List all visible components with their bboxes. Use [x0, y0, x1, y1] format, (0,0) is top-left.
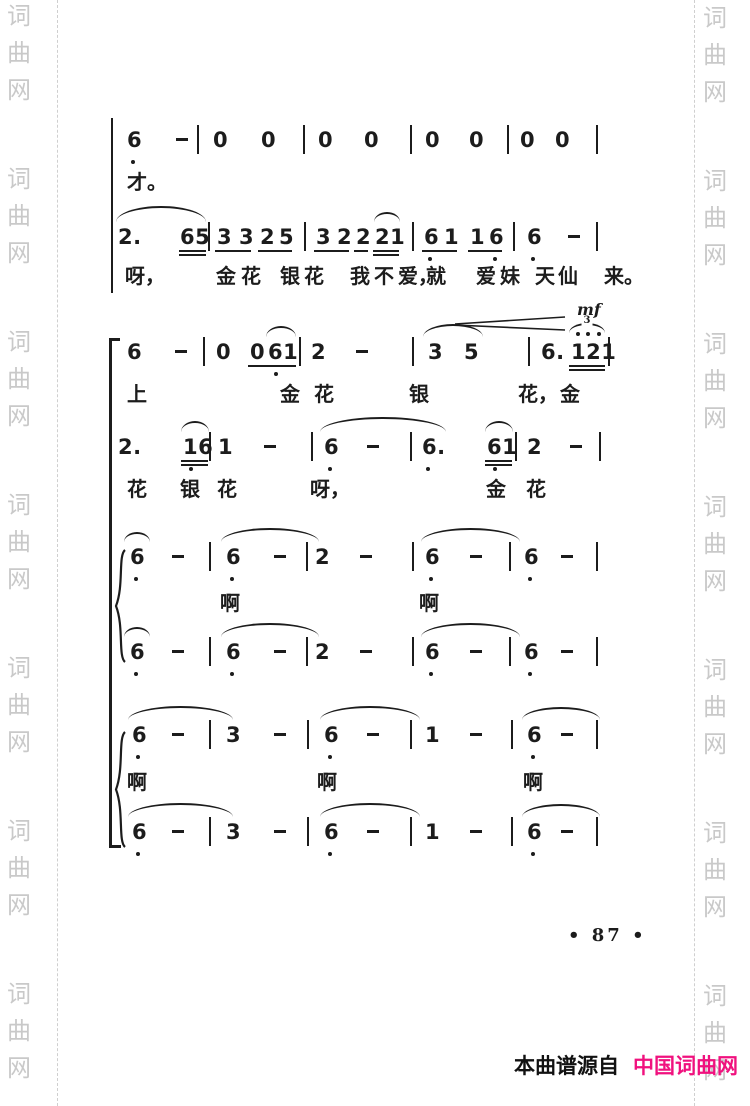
- duration-dash: [172, 650, 184, 653]
- barline: [209, 817, 211, 846]
- beam-underline: [468, 250, 502, 252]
- duration-dash: [175, 350, 187, 353]
- note-number: 2: [315, 640, 330, 664]
- slur: [320, 706, 420, 720]
- barline: [410, 817, 412, 846]
- octave-dot: [328, 852, 332, 856]
- duration-dash: [561, 830, 573, 833]
- duration-dash: [172, 830, 184, 833]
- duration-dash: [274, 733, 286, 736]
- note-number: 6: [489, 225, 504, 249]
- lyric-syllable: 来。: [604, 264, 644, 288]
- barline: [203, 337, 205, 366]
- slur: [221, 528, 319, 542]
- octave-dot: [328, 467, 332, 471]
- source-site-link[interactable]: 中国词曲网: [633, 1054, 738, 1078]
- barline: [412, 542, 414, 571]
- beam-underline: [485, 464, 512, 466]
- voice-brace-1: [113, 549, 127, 663]
- note-number: 2: [260, 225, 275, 249]
- octave-dot: [576, 332, 580, 336]
- duration-dash: [356, 350, 368, 353]
- barline: [197, 125, 199, 154]
- slur: [124, 532, 150, 542]
- note-number: 0: [318, 128, 333, 152]
- lyric-syllable: 啊: [127, 770, 147, 794]
- note-number: 2: [356, 225, 371, 249]
- lyric-syllable: 仙: [558, 264, 578, 288]
- barline: [304, 222, 306, 251]
- duration-dash: [176, 138, 188, 141]
- octave-dot: [597, 332, 601, 336]
- lyric-syllable: 呀，: [125, 264, 165, 288]
- note-number: 5: [464, 340, 479, 364]
- duration-dash: [264, 445, 276, 448]
- octave-dot: [230, 577, 234, 581]
- lyric-syllable: 金: [486, 477, 506, 501]
- note-number: 6: [130, 545, 145, 569]
- system-line-hook-top: [111, 338, 120, 341]
- lyric-syllable: 啊: [317, 770, 337, 794]
- lyric-syllable: 花: [127, 477, 147, 501]
- note-number: 2: [315, 545, 330, 569]
- note-number: 1: [218, 435, 233, 459]
- barline: [208, 222, 210, 251]
- note-number: 2.: [118, 225, 142, 249]
- note-number: 6.: [422, 435, 446, 459]
- beam-underline: [569, 369, 605, 371]
- slur: [485, 421, 513, 432]
- barline: [306, 637, 308, 666]
- lyric-syllable: 不: [374, 264, 394, 288]
- octave-dot: [274, 372, 278, 376]
- note-number: 6: [130, 640, 145, 664]
- octave-dot: [134, 672, 138, 676]
- beam-underline: [179, 254, 206, 256]
- lyric-syllable: 啊: [220, 591, 240, 615]
- note-number: 2: [311, 340, 326, 364]
- note-number: 6: [127, 128, 142, 152]
- note-number: 0: [425, 128, 440, 152]
- note-number: 6: [324, 820, 339, 844]
- note-number: 6.: [541, 340, 565, 364]
- octave-dot: [131, 160, 135, 164]
- lyric-syllable: 银: [409, 382, 429, 406]
- slur: [266, 326, 296, 337]
- barline: [412, 337, 414, 366]
- duration-dash: [561, 733, 573, 736]
- octave-dot: [189, 467, 193, 471]
- lyric-syllable: 花: [217, 477, 237, 501]
- barline: [515, 432, 517, 461]
- barline: [528, 337, 530, 366]
- duration-dash: [367, 445, 379, 448]
- note-number: 0: [520, 128, 535, 152]
- slur: [128, 803, 233, 817]
- slur: [124, 627, 150, 637]
- octave-dot: [493, 467, 497, 471]
- barline: [412, 637, 414, 666]
- lyric-syllable: 金: [280, 382, 300, 406]
- barline: [209, 720, 211, 749]
- note-number: 0: [213, 128, 228, 152]
- octave-dot: [136, 852, 140, 856]
- octave-dot: [136, 755, 140, 759]
- footer-source: 本曲谱源自中国词曲网: [514, 1050, 738, 1080]
- barline: [513, 222, 515, 251]
- score-page: { "colors": { "ink": "#1c1c1c", "waterma…: [0, 0, 750, 1106]
- note-number: 6: [226, 640, 241, 664]
- barline: [311, 432, 313, 461]
- note-number: 61: [268, 340, 298, 364]
- slur: [522, 804, 600, 817]
- barline: [307, 720, 309, 749]
- lyric-syllable: 金: [560, 382, 580, 406]
- note-number: 6: [424, 225, 439, 249]
- barline: [209, 637, 211, 666]
- slur: [128, 706, 233, 720]
- note-number: 6: [132, 723, 147, 747]
- beam-underline: [179, 250, 206, 252]
- beam-underline: [314, 250, 349, 252]
- source-prefix-label: 本曲谱源自: [514, 1054, 619, 1078]
- duration-dash: [172, 733, 184, 736]
- octave-dot: [531, 755, 535, 759]
- note-number: 6: [425, 640, 440, 664]
- slur: [181, 421, 209, 432]
- barline: [509, 542, 511, 571]
- slur: [374, 212, 400, 222]
- duration-dash: [470, 830, 482, 833]
- slur: [221, 623, 319, 637]
- octave-dot: [428, 257, 432, 261]
- beam-underline: [485, 460, 512, 462]
- note-number: 1: [470, 225, 485, 249]
- note-number: 0: [555, 128, 570, 152]
- duration-dash: [470, 555, 482, 558]
- octave-dot: [426, 467, 430, 471]
- barline: [596, 720, 598, 749]
- note-number: 6: [527, 225, 542, 249]
- lyric-syllable: 啊: [419, 591, 439, 615]
- note-number: 3: [239, 225, 254, 249]
- note-number: 6: [524, 640, 539, 664]
- note-number: 61: [487, 435, 517, 459]
- octave-dot: [328, 755, 332, 759]
- system-barline-1: [111, 118, 113, 293]
- note-number: 6: [132, 820, 147, 844]
- octave-dot: [493, 257, 497, 261]
- barline: [596, 125, 598, 154]
- beam-underline: [258, 250, 292, 252]
- duration-dash: [561, 555, 573, 558]
- duration-dash: [274, 830, 286, 833]
- note-number: 5: [279, 225, 294, 249]
- barline: [306, 542, 308, 571]
- lyric-syllable: 爱: [476, 264, 496, 288]
- beam-underline: [248, 365, 296, 367]
- note-number: 3: [226, 820, 241, 844]
- barline: [507, 125, 509, 154]
- duration-dash: [360, 555, 372, 558]
- note-number: 0: [469, 128, 484, 152]
- beam-underline: [354, 250, 368, 252]
- slur: [421, 528, 520, 542]
- lyric-syllable: 妹: [500, 264, 520, 288]
- slur: [421, 623, 520, 637]
- lyric-syllable: 花: [241, 264, 261, 288]
- octave-dot: [531, 257, 535, 261]
- beam-underline: [181, 460, 208, 462]
- barline: [410, 125, 412, 154]
- lyric-syllable: 呀，: [310, 477, 350, 501]
- page-number: • 87 •: [568, 925, 647, 946]
- lyric-syllable: 银: [180, 477, 200, 501]
- duration-dash: [470, 733, 482, 736]
- beam-underline: [422, 250, 457, 252]
- barline: [511, 720, 513, 749]
- note-number: 3: [428, 340, 443, 364]
- note-number: 2: [337, 225, 352, 249]
- beam-underline: [373, 250, 399, 252]
- octave-dot: [528, 672, 532, 676]
- octave-dot: [429, 577, 433, 581]
- note-number: 21: [375, 225, 405, 249]
- duration-dash: [367, 830, 379, 833]
- duration-dash: [561, 650, 573, 653]
- lyric-syllable: 花，: [518, 382, 558, 406]
- slur: [116, 206, 206, 222]
- tuplet-number: 3: [582, 315, 593, 326]
- lyric-syllable: 就: [426, 264, 446, 288]
- beam-underline: [181, 464, 208, 466]
- barline: [511, 817, 513, 846]
- barline: [509, 637, 511, 666]
- note-number: 1: [425, 820, 440, 844]
- lyric-syllable: 啊: [523, 770, 543, 794]
- note-number: 2.: [118, 435, 142, 459]
- lyric-syllable: 才。: [127, 170, 167, 194]
- voice-brace-2: [113, 731, 127, 848]
- note-number: 2: [527, 435, 542, 459]
- barline: [410, 432, 412, 461]
- slur: [320, 803, 420, 817]
- note-number: 6: [425, 545, 440, 569]
- note-number: 6: [324, 723, 339, 747]
- barline: [303, 125, 305, 154]
- lyric-syllable: 花: [526, 477, 546, 501]
- note-number: 3: [226, 723, 241, 747]
- barline: [209, 542, 211, 571]
- barline: [307, 817, 309, 846]
- octave-dot: [134, 577, 138, 581]
- barline: [596, 542, 598, 571]
- note-number: 6: [527, 820, 542, 844]
- slur: [522, 707, 600, 720]
- note-number: 1: [425, 723, 440, 747]
- beam-underline: [569, 365, 605, 367]
- duration-dash: [367, 733, 379, 736]
- system-barline-2: [109, 338, 112, 848]
- lyric-syllable: 上: [127, 382, 147, 406]
- octave-dot: [230, 672, 234, 676]
- duration-dash: [360, 650, 372, 653]
- note-number: 0: [216, 340, 231, 364]
- octave-dot: [528, 577, 532, 581]
- lyric-syllable: 我: [350, 264, 370, 288]
- barline: [596, 222, 598, 251]
- beam-underline: [215, 250, 251, 252]
- note-number: 6: [527, 723, 542, 747]
- lyric-syllable: 花: [304, 264, 324, 288]
- note-number: 0: [261, 128, 276, 152]
- note-number: 1: [444, 225, 459, 249]
- note-number: 6: [127, 340, 142, 364]
- octave-dot: [586, 332, 590, 336]
- lyric-syllable: 银: [280, 264, 300, 288]
- lyric-syllable: 花: [314, 382, 334, 406]
- octave-dot: [531, 852, 535, 856]
- duration-dash: [274, 555, 286, 558]
- barline: [412, 222, 414, 251]
- lyric-syllable: 天: [535, 264, 555, 288]
- note-number: 3: [217, 225, 232, 249]
- duration-dash: [470, 650, 482, 653]
- barline: [299, 337, 301, 366]
- duration-dash: [274, 650, 286, 653]
- note-number: 0: [250, 340, 265, 364]
- octave-dot: [429, 672, 433, 676]
- note-number: 6: [324, 435, 339, 459]
- note-number: 6: [226, 545, 241, 569]
- note-number: 0: [364, 128, 379, 152]
- duration-dash: [172, 555, 184, 558]
- slur: [320, 417, 446, 432]
- barline: [410, 720, 412, 749]
- beam-underline: [373, 254, 399, 256]
- barline: [608, 337, 610, 366]
- duration-dash: [568, 235, 580, 238]
- note-number: 3: [316, 225, 331, 249]
- barline: [599, 432, 601, 461]
- duration-dash: [570, 445, 582, 448]
- barline: [596, 817, 598, 846]
- barline: [596, 637, 598, 666]
- note-number: 65: [180, 225, 210, 249]
- note-number: 6: [524, 545, 539, 569]
- barline: [209, 432, 211, 461]
- lyric-syllable: 金: [216, 264, 236, 288]
